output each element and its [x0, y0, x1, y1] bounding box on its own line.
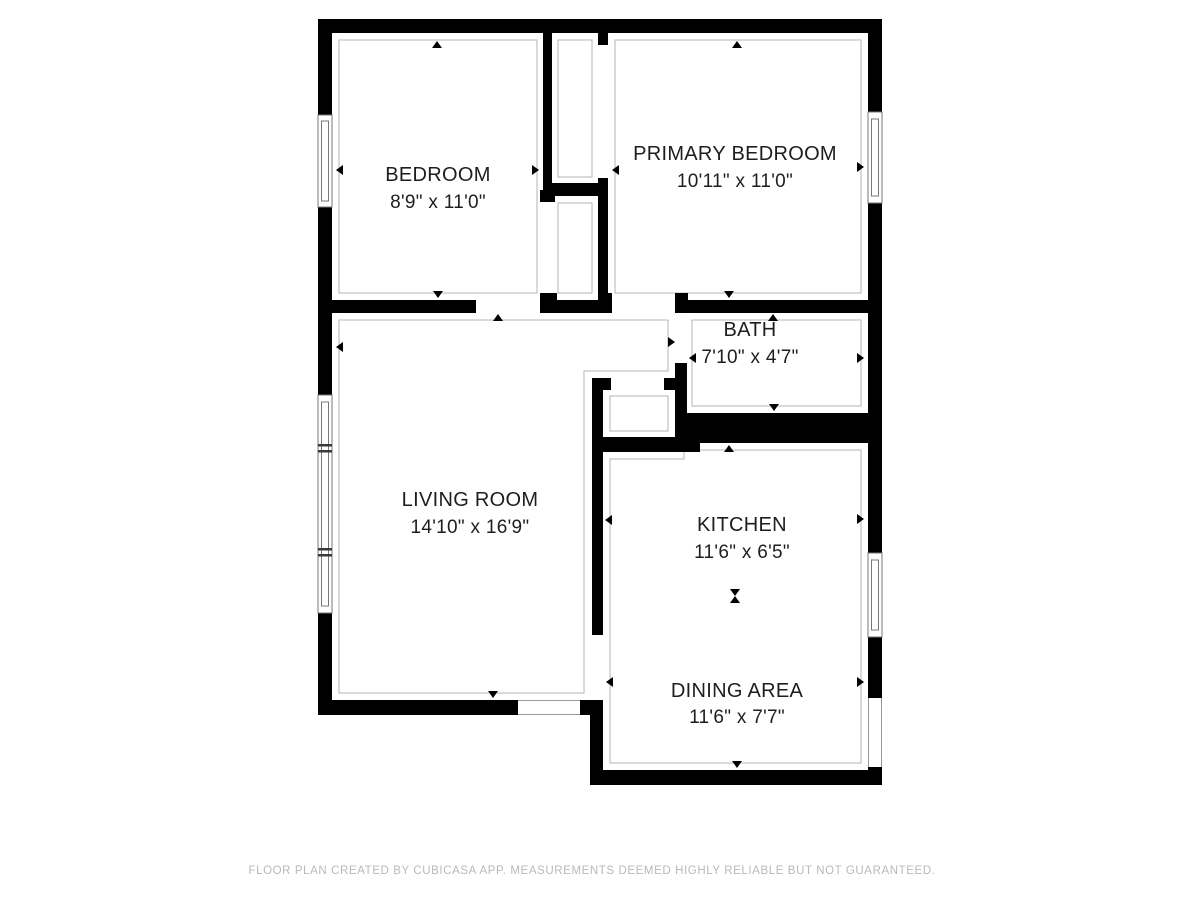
- arrow-down-icon: [433, 291, 443, 298]
- arrow-up-icon: [724, 445, 734, 452]
- footer-disclaimer: FLOOR PLAN CREATED BY CUBICASA APP. MEAS…: [248, 865, 935, 877]
- kitchen-label: KITCHEN: [697, 514, 787, 536]
- arrow-down-icon: [769, 404, 779, 411]
- wall-segment: [685, 413, 868, 443]
- wall-segment: [590, 770, 882, 785]
- walls: [318, 19, 882, 785]
- bath-dimensions: 7'10" x 4'7": [701, 347, 798, 368]
- wall-segment: [598, 33, 608, 45]
- arrow-down-icon: [732, 761, 742, 768]
- wall-segment: [603, 378, 611, 390]
- arrow-right-icon: [532, 165, 539, 175]
- bedroom-label: BEDROOM: [385, 164, 490, 186]
- floor-plan-drawing: BEDROOM 8'9" x 11'0" PRIMARY BEDROOM 10'…: [0, 0, 1200, 900]
- wall-segment: [868, 203, 882, 553]
- wall-segment: [318, 300, 476, 313]
- arrow-up-icon: [732, 41, 742, 48]
- dining-area-label: DINING AREA: [671, 680, 804, 702]
- wall-segment: [868, 637, 882, 698]
- arrow-down-icon: [488, 691, 498, 698]
- closet-bottom-outline: [558, 203, 592, 293]
- bedroom-dimensions: 8'9" x 11'0": [390, 192, 486, 213]
- wall-segment: [675, 300, 868, 313]
- wall-segment: [592, 437, 700, 452]
- primary-bedroom-outline: [615, 40, 861, 293]
- closet-top-outline: [558, 40, 592, 177]
- primary-bedroom-label: PRIMARY BEDROOM: [633, 143, 837, 165]
- wall-segment: [592, 378, 603, 635]
- wall-segment: [543, 33, 552, 202]
- wall-segment: [868, 33, 882, 112]
- living-room-window-icon: [318, 395, 332, 613]
- bedroom-window-icon: [318, 115, 332, 207]
- wall-segment: [580, 700, 603, 715]
- living-room-exterior-door: [518, 701, 580, 715]
- floor-plan-page: BEDROOM 8'9" x 11'0" PRIMARY BEDROOM 10'…: [0, 0, 1200, 900]
- arrow-up-icon: [493, 314, 503, 321]
- kitchen-window-icon: [868, 553, 882, 637]
- living-room-label: LIVING ROOM: [402, 489, 539, 511]
- arrow-right-icon: [668, 337, 675, 347]
- wall-segment: [318, 33, 332, 115]
- wall-segment: [318, 19, 882, 33]
- wall-segment: [598, 178, 608, 303]
- dining-exterior-door: [869, 698, 882, 767]
- kitchen-dimensions: 11'6" x 6'5": [694, 542, 790, 563]
- primary-bedroom-dimensions: 10'11" x 11'0": [677, 171, 793, 192]
- arrow-left-icon: [605, 515, 612, 525]
- wall-segment: [318, 700, 518, 715]
- wall-segment: [664, 378, 675, 390]
- dining-area-dimensions: 11'6" x 7'7": [689, 707, 785, 728]
- arrow-up-icon: [432, 41, 442, 48]
- arrow-down-icon: [724, 291, 734, 298]
- wall-segment: [318, 613, 332, 715]
- space-divider-icon: [730, 589, 740, 603]
- primary-bedroom-window-icon: [868, 112, 882, 203]
- bath-label: BATH: [723, 319, 776, 341]
- living-room-dimensions: 14'10" x 16'9": [411, 517, 530, 538]
- pantry-outline: [610, 396, 668, 431]
